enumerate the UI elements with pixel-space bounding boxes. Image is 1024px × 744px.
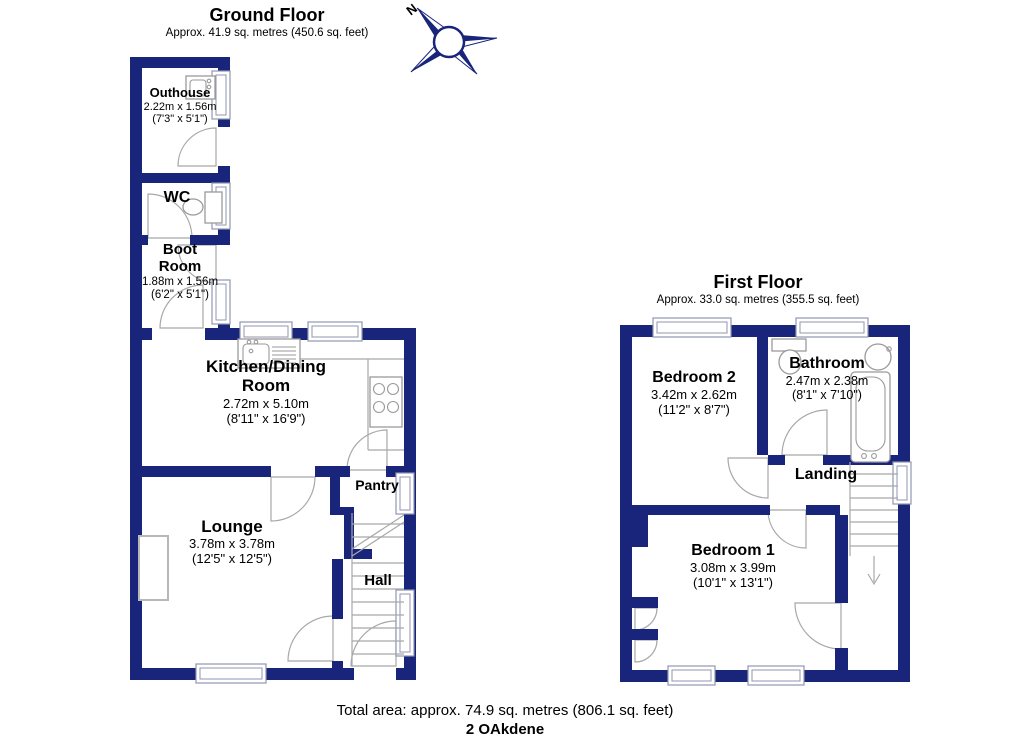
room-label-wc: WC	[137, 189, 217, 207]
first-floor-title: First Floor Approx. 33.0 sq. metres (355…	[608, 272, 908, 307]
bedroom1-window-right	[748, 666, 804, 685]
room-label-bedroom1: Bedroom 1 3.08m x 3.99m (10'1" x 13'1")	[633, 542, 833, 590]
bedroom1-cupboard-door-top-arc	[635, 608, 657, 630]
lounge-window	[196, 664, 266, 683]
bedroom1-cupboard-door-bottom-arc	[635, 640, 657, 662]
total-area-text: Total area: approx. 74.9 sq. metres (806…	[255, 703, 755, 720]
bedroom1-window-left	[668, 666, 715, 685]
bedroom2-window	[653, 318, 731, 337]
room-label-landing: Landing	[766, 466, 886, 484]
kitchen-lounge-door-arc	[271, 477, 315, 521]
first-doors	[635, 410, 841, 662]
room-label-kitchen: Kitchen/Dining Room 2.72m x 5.10m (8'11"…	[166, 357, 366, 427]
compass-rose	[411, 8, 497, 74]
hall-window	[396, 590, 414, 656]
kitchen-hob-icon	[370, 377, 402, 427]
floorplan-page: N Ground Floor Approx. 41.9 sq. metres (…	[0, 0, 1024, 744]
outhouse-door-arc	[178, 128, 216, 166]
bathroom-window	[796, 318, 868, 337]
room-label-lounge: Lounge 3.78m x 3.78m (12'5" x 12'5")	[132, 517, 332, 567]
bedroom1-door-arc	[795, 603, 841, 649]
ground-floor-title: Ground Floor Approx. 41.9 sq. metres (45…	[117, 5, 417, 40]
room-label-bathroom: Bathroom 2.47m x 2.38m (8'1" x 7'10")	[737, 355, 917, 402]
room-label-hall: Hall	[338, 573, 418, 590]
footer: Total area: approx. 74.9 sq. metres (806…	[255, 703, 755, 739]
address-text: 2 OAkdene	[255, 722, 755, 739]
room-label-outhouse: Outhouse 2.22m x 1.56m (7'3" x 5'1")	[110, 86, 250, 126]
kitchen-window-right	[308, 322, 362, 341]
bedroom2-door-arc	[728, 458, 768, 498]
lounge-hall-door-arc	[288, 616, 333, 661]
compass-hub	[434, 27, 464, 57]
room-label-pantry: Pantry	[327, 478, 427, 494]
room-label-boot-room: Boot Room 1.88m x 1.56m (6'2" x 5'1")	[110, 242, 250, 302]
kitchen-window-left	[240, 322, 292, 341]
